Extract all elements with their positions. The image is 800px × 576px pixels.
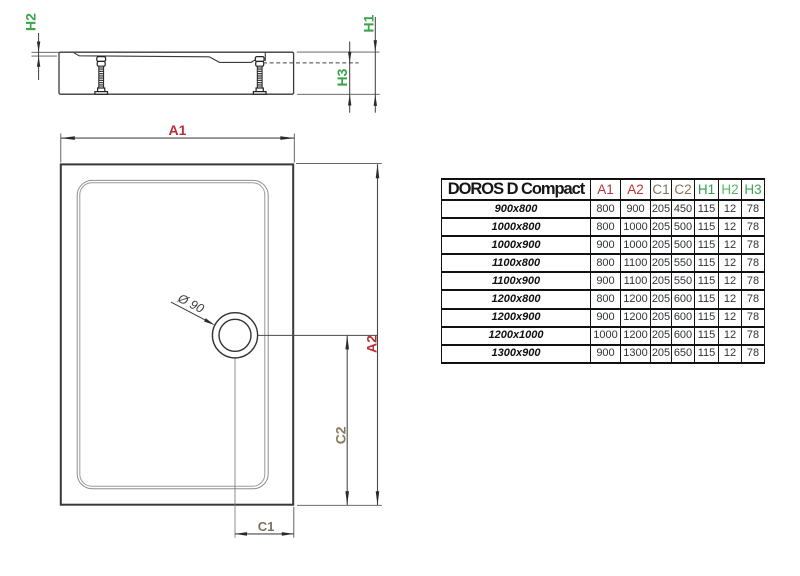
svg-text:A1: A1 [169,122,187,138]
svg-text:H1: H1 [361,14,377,32]
svg-text:C1: C1 [258,519,275,534]
svg-text:A2: A2 [363,335,379,353]
svg-text:H2: H2 [22,13,38,31]
svg-text:H3: H3 [334,68,350,86]
svg-text:C2: C2 [332,426,348,444]
